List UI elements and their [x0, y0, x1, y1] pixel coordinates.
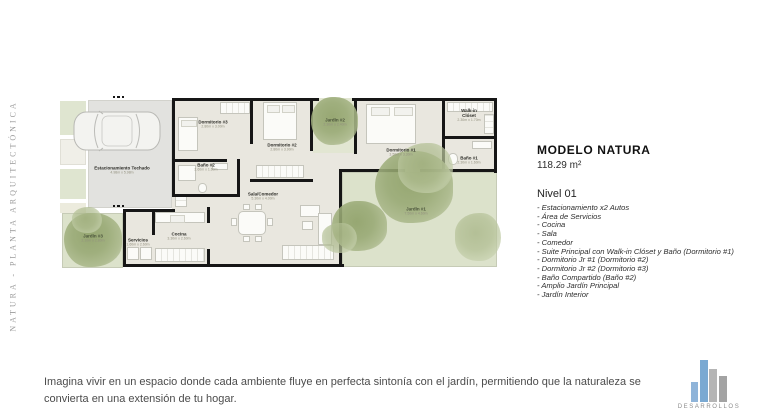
dryer: [140, 247, 152, 260]
shrub: [455, 213, 501, 261]
washer: [127, 247, 139, 260]
wall: [175, 194, 240, 197]
room-label-bano-2: Baño #22.60m x 1.60m: [194, 163, 217, 172]
room-label-dormitorio-2: Dormitorio #22.80m x 3.90m: [267, 143, 296, 152]
feature-item: - Jardín Interior: [537, 291, 765, 300]
car-top-view: [72, 109, 162, 153]
chair: [243, 204, 250, 210]
model-title: MODELO NATURA: [537, 143, 765, 157]
wall: [237, 159, 240, 197]
room-label-sala-comedor: Sala/Comedor5.30m x 4.00m: [248, 192, 278, 201]
wall: [250, 98, 253, 144]
company-logo: DESARROLLOS: [668, 358, 750, 410]
chair: [267, 218, 273, 226]
wall: [352, 98, 497, 101]
kitchen-counter: [155, 212, 205, 223]
sofa: [300, 205, 320, 217]
wall: [250, 179, 313, 182]
chair: [243, 236, 250, 242]
side-vertical-label: NATURA - PLANTA ARQUITECTÓNICA: [9, 100, 18, 331]
level-title: Nivel 01: [537, 188, 765, 200]
hall-cabinet: [175, 196, 187, 207]
wall: [123, 209, 175, 212]
bed: [366, 104, 416, 144]
model-area: 118.29 m²: [537, 160, 765, 171]
kitchen-counter: [155, 248, 205, 262]
wall: [445, 136, 497, 139]
closet: [220, 102, 250, 114]
room-label-jardin-3: Jardín #32.10m x 2.80m: [81, 234, 104, 243]
wall: [207, 249, 210, 267]
wall: [123, 264, 344, 267]
logo-text: DESARROLLOS: [668, 404, 750, 410]
floor-plan: Estacionamiento Techado4.98m x 5.98m Dor…: [60, 95, 502, 275]
room-label-jardin-1: Jardín #17.50m x 4.60m: [404, 207, 427, 216]
room-label-dormitorio-1: Dormitorio #13.50m x 3.30m: [386, 148, 415, 157]
closet: [484, 114, 494, 134]
room-label-cocina: Cocina3.30m x 2.60m: [167, 232, 190, 241]
wall: [152, 209, 155, 235]
column-markers: [113, 205, 124, 207]
bed: [178, 117, 198, 151]
tagline-text: Imagina vivir en un espacio donde cada a…: [44, 374, 644, 407]
dining-table: [238, 211, 266, 235]
shower: [178, 165, 196, 181]
wall: [207, 207, 210, 223]
closet: [256, 165, 304, 178]
model-info-panel: MODELO NATURA 118.29 m² Nivel 01 - Estac…: [537, 143, 765, 300]
wall: [172, 98, 175, 197]
shrub: [322, 223, 357, 253]
feature-item: - Área de Servicios: [537, 213, 765, 222]
buildings-icon: [668, 358, 750, 402]
wall: [172, 98, 319, 101]
chair: [231, 218, 237, 226]
room-label-servicios: Servicios1.60m x 2.60m: [126, 238, 149, 247]
column-markers: [113, 96, 124, 98]
room-label-walkin-closet: Walk-in Clóset2.30m x 1.70m: [456, 108, 482, 122]
room-label-estacionamiento: Estacionamiento Techado4.98m x 5.98m: [94, 166, 149, 175]
toilet: [198, 183, 207, 193]
feature-list: - Estacionamiento x2 Autos - Área de Ser…: [537, 204, 765, 300]
coffee-table: [302, 221, 313, 230]
shrub: [72, 207, 102, 233]
room-label-bano-1: Baño #12.30m x 1.60m: [457, 156, 480, 165]
chair: [255, 204, 262, 210]
feature-item: - Cocina: [537, 221, 765, 230]
planting-strip: [60, 169, 86, 199]
room-label-jardin-2: Jardín #22.30m x 2.40m: [323, 118, 346, 127]
room-label-dormitorio-3: Dormitorio #32.80m x 3.00m: [198, 120, 227, 129]
bed: [263, 102, 297, 140]
sink-counter: [472, 141, 492, 149]
presentation-slide: NATURA - PLANTA ARQUITECTÓNICA: [0, 0, 768, 417]
chair: [255, 236, 262, 242]
